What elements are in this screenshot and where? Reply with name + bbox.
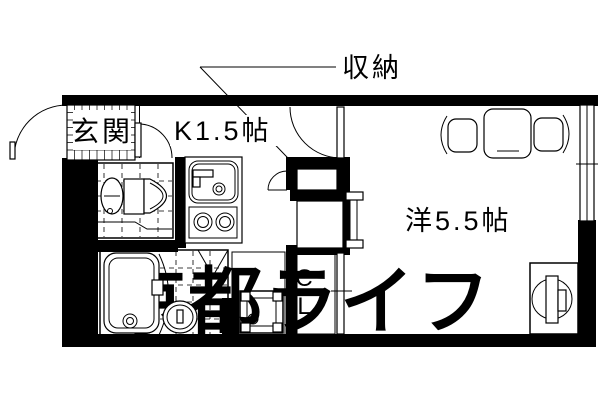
kitchen-unit (185, 157, 242, 243)
chair-right (534, 118, 563, 151)
floorplan-image: 京都ライフ 玄関 (0, 0, 600, 400)
wall-top (62, 95, 598, 106)
entrance-door-leaf (10, 142, 15, 159)
wall-bottom (62, 334, 596, 347)
closet-label-l: L (297, 293, 310, 320)
bathtub (104, 253, 159, 333)
closet-label-c: C (295, 265, 312, 292)
chair-left (448, 119, 477, 152)
wall-storage-stub (286, 157, 297, 190)
room-door-leaf (337, 107, 344, 158)
wall-bath-right (222, 298, 232, 334)
closet-sliding-door (337, 253, 344, 334)
toilet-door-leaf (135, 123, 141, 157)
entrance-label: 玄関 (71, 116, 133, 147)
wall-right-lower (578, 220, 596, 334)
wall-toilet-kitchen (175, 157, 186, 248)
bath-faucet (152, 280, 163, 295)
wall-storage-mid (290, 189, 337, 201)
floorplan-svg: 京都ライフ 玄関 (0, 0, 600, 400)
washbasin (163, 301, 197, 333)
toilet (101, 178, 167, 214)
kitchen-label: K1.5帖 (174, 116, 272, 146)
storage-label: 収納 (342, 53, 402, 83)
western-room-label: 洋5.5帖 (405, 206, 512, 236)
